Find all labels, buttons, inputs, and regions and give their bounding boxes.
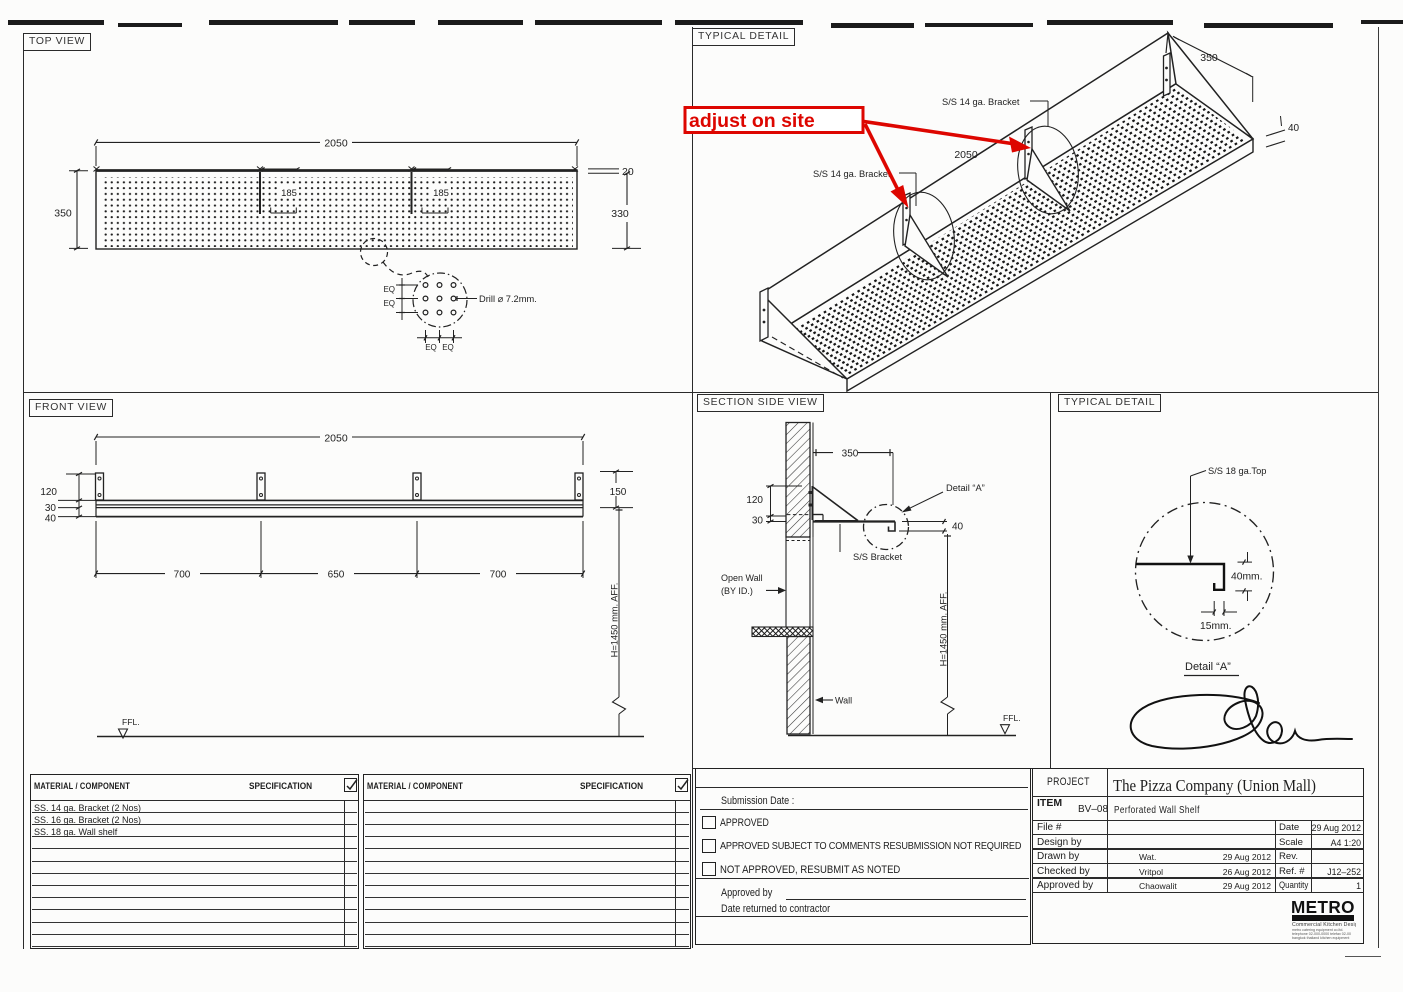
svg-text:350: 350 [1200,52,1218,64]
svg-text:15mm.: 15mm. [1200,621,1231,632]
svg-text:H=1450 mm. AFF.: H=1450 mm. AFF. [939,592,949,667]
svg-text:40: 40 [45,514,57,525]
svg-text:185: 185 [281,188,297,199]
svg-text:Open Wall: Open Wall [721,573,763,583]
svg-text:EQ: EQ [425,343,437,352]
svg-text:Detail “A”: Detail “A” [946,483,985,493]
svg-text:30: 30 [45,503,57,514]
svg-text:350: 350 [54,208,72,220]
svg-text:S/S 18 ga.Top: S/S 18 ga.Top [1208,466,1266,476]
svg-text:700: 700 [490,570,507,581]
svg-text:EQ: EQ [383,285,395,294]
svg-text:Wall: Wall [835,696,852,706]
svg-text:40mm.: 40mm. [1231,572,1262,583]
svg-text:FFL.: FFL. [122,717,140,727]
svg-text:2050: 2050 [324,138,348,150]
svg-text:650: 650 [328,570,345,581]
svg-text:120: 120 [40,487,57,498]
svg-text:40: 40 [952,522,964,533]
svg-text:H=1450 mm. AFF.: H=1450 mm. AFF. [610,583,620,658]
svg-text:700: 700 [174,570,191,581]
svg-text:185: 185 [433,188,449,199]
svg-text:150: 150 [610,487,627,498]
svg-text:350: 350 [842,449,859,460]
svg-text:20: 20 [622,166,634,178]
svg-text:120: 120 [746,495,763,506]
svg-text:FFL.: FFL. [1003,713,1021,723]
svg-text:Detail “A”: Detail “A” [1185,661,1231,673]
svg-text:(BY ID.): (BY ID.) [721,586,753,596]
svg-text:S/S 14 ga. Bracket: S/S 14 ga. Bracket [942,97,1020,107]
svg-text:EQ: EQ [442,343,454,352]
svg-text:adjust on site: adjust on site [689,110,815,132]
svg-text:40: 40 [1288,123,1300,134]
svg-text:2050: 2050 [324,433,348,445]
svg-text:S/S 14 ga. Bracket: S/S 14 ga. Bracket [813,169,891,179]
svg-text:2050: 2050 [954,149,978,161]
svg-text:S/S Bracket: S/S Bracket [853,552,903,562]
svg-text:30: 30 [752,516,764,527]
svg-text:Drill ⌀ 7.2mm.: Drill ⌀ 7.2mm. [479,294,537,304]
svg-text:EQ: EQ [383,299,395,308]
svg-text:330: 330 [611,208,629,220]
